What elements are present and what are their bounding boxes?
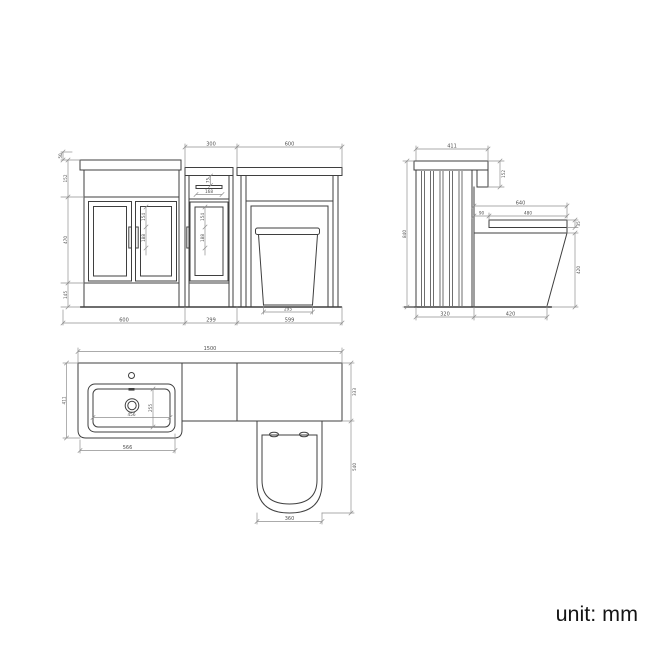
tap-hole: [129, 373, 135, 379]
dim-label: 360: [285, 516, 295, 522]
side-elevation-view: 411 152 840 640 90 480 35 420: [402, 144, 581, 320]
dim-label: 333: [352, 388, 357, 396]
toilet-plan-seat: [262, 435, 317, 504]
wc-unit-door: [190, 202, 228, 281]
dim-label: 540: [352, 463, 357, 471]
dim-label: 90: [479, 211, 485, 216]
dim-label: 75: [205, 178, 210, 184]
dim-label: 420: [576, 266, 581, 274]
dim-label: 456: [128, 412, 136, 417]
wc-unit-handle: [187, 227, 190, 248]
toilet-section-worktop: [237, 168, 342, 176]
vanity-handle-left: [129, 227, 132, 248]
basin-inner: [93, 389, 170, 427]
vanity-worktop: [80, 160, 181, 170]
toilet-seat-side: [489, 220, 567, 228]
basin-outer: [88, 384, 175, 432]
dim-label: 299: [206, 318, 216, 324]
dim-label: 152: [501, 170, 506, 178]
vanity-handle-right: [136, 227, 139, 248]
dim-label: 599: [285, 318, 295, 324]
dim-label: 600: [119, 318, 129, 324]
front-elevation-view: 154 188 75 168 154 188: [58, 142, 344, 325]
toilet-pan-front: [259, 235, 318, 306]
toilet-pan-side: [547, 233, 567, 306]
unit-label: unit: mm: [556, 602, 638, 626]
toilet-seat-front: [256, 228, 320, 235]
dim-label: 470: [63, 236, 68, 244]
dim-label: 154: [141, 213, 146, 221]
dim-label: 411: [447, 144, 457, 150]
dim-label: 168: [205, 189, 213, 194]
dim-label: 411: [62, 396, 67, 404]
technical-drawing: 154 188 75 168 154 188: [0, 0, 650, 650]
dim-label: 566: [123, 445, 133, 451]
plan-view: 255 456 566 1500 411 333: [62, 346, 358, 524]
basin-waste: [125, 399, 139, 413]
dim-label: 145: [63, 291, 68, 299]
dim-label: 295: [284, 307, 292, 312]
dim-label: 840: [402, 230, 407, 238]
dim-label: 640: [516, 201, 526, 207]
dim-label: 188: [200, 234, 205, 242]
dim-label: 420: [506, 312, 516, 318]
overflow-slot: [129, 388, 135, 391]
technical-drawing-page: 154 188 75 168 154 188: [0, 0, 650, 650]
dim-label: 480: [524, 211, 532, 216]
wc-unit-worktop: [185, 168, 233, 176]
dim-label: 600: [285, 142, 295, 148]
dim-label: 320: [440, 312, 450, 318]
dim-label: 154: [200, 213, 205, 221]
dim-label: 152: [63, 174, 68, 182]
vanity-door-left: [89, 202, 132, 282]
dim-label: 300: [206, 142, 216, 148]
fluted-panel: [422, 171, 463, 306]
dim-label: 1500: [204, 346, 217, 352]
side-worktop: [414, 161, 488, 170]
dim-label: 35: [576, 221, 581, 227]
dim-label: 50: [58, 153, 63, 159]
dim-label: 255: [148, 404, 153, 412]
dim-label: 188: [141, 234, 146, 242]
